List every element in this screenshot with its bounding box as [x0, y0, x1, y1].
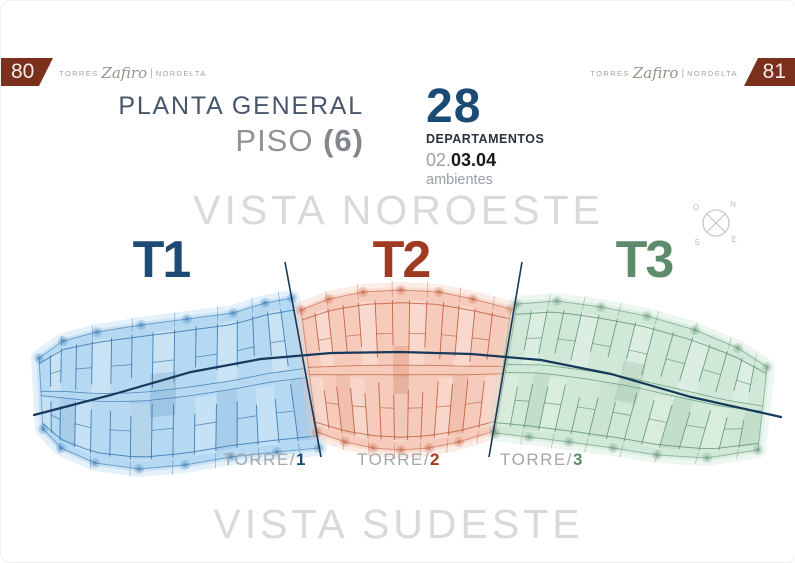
- torre-2-prefix: TORRE/: [357, 450, 430, 469]
- torre-3-prefix: TORRE/: [500, 450, 573, 469]
- tower-3-title: T3: [559, 234, 729, 286]
- torre-3-number: 3: [573, 450, 584, 469]
- torre-2-caption: TORRE/2: [319, 450, 479, 470]
- tower-2-title: T2: [316, 234, 486, 286]
- torre-3-caption: TORRE/3: [462, 450, 622, 470]
- torre-2-number: 2: [430, 450, 441, 469]
- tower-1-title: T1: [76, 234, 246, 286]
- torre-1-number: 1: [296, 450, 307, 469]
- torre-1-prefix: TORRE/: [223, 450, 296, 469]
- brochure-page: 80 81 TORRES Zafiro | NORDELTA TORRES Za…: [0, 0, 795, 563]
